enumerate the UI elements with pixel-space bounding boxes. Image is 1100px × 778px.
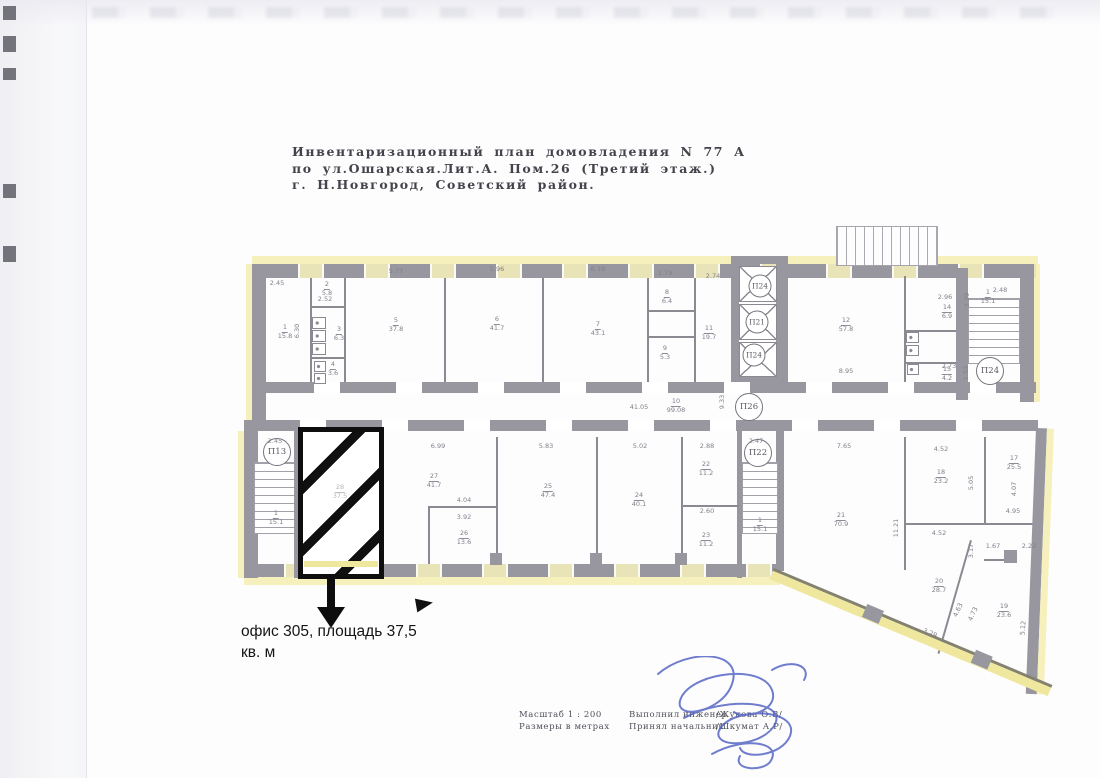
callout-arrow xyxy=(327,578,335,608)
callout-line-1: офис 305, площадь 37,5 xyxy=(241,621,417,642)
dimension-label: 1.67 xyxy=(986,542,1000,550)
dimension-label: 2.47 xyxy=(749,437,763,445)
dimension-label: 2.60 xyxy=(700,507,714,515)
wc-fixture xyxy=(314,373,326,384)
stair-treads xyxy=(254,462,296,534)
office-305-highlighted-room xyxy=(298,427,384,579)
room-label: 2613.6 xyxy=(457,530,471,546)
dimension-label: 5.83 xyxy=(539,442,553,450)
wall-pier xyxy=(490,553,502,565)
wall-pier xyxy=(675,553,687,565)
partition xyxy=(428,506,430,564)
dimension-label: 4.07 xyxy=(1010,482,1018,496)
room-label: 641.7 xyxy=(490,316,504,332)
partition xyxy=(694,278,696,382)
wc-fixture xyxy=(906,332,919,343)
room-label: 146.9 xyxy=(942,304,952,320)
wall-left-upper xyxy=(252,264,266,420)
stair-wall xyxy=(956,268,968,400)
wc-fixture xyxy=(312,330,326,342)
room-label: 2741.7 xyxy=(427,473,441,489)
partition xyxy=(904,276,906,382)
room-label: 115.8 xyxy=(278,324,292,340)
partition xyxy=(681,437,683,565)
wc-fixture xyxy=(314,361,326,372)
room-label: 2028.7 xyxy=(932,578,946,594)
wall-pier xyxy=(1004,550,1017,563)
room-label: 86.4 xyxy=(662,289,672,305)
dimension-label: 2.45 xyxy=(270,279,284,287)
dimension-label: 2.45 xyxy=(268,437,282,445)
partition xyxy=(648,336,694,338)
partition xyxy=(496,437,498,565)
dimension-label: 2.96 xyxy=(938,293,952,301)
dimension-label: 5.02 xyxy=(633,442,647,450)
scanned-plan-page: Инвентаризационный план домовладения N 7… xyxy=(0,0,1100,778)
dimension-label: 4.52 xyxy=(932,529,946,537)
dimension-label: 3.92 xyxy=(457,513,471,521)
highlight-wall xyxy=(304,561,378,567)
partition xyxy=(444,278,446,382)
partition xyxy=(648,310,694,312)
partition xyxy=(428,506,496,508)
elevator-shaft xyxy=(739,342,777,377)
wall-pier xyxy=(590,553,602,565)
partition xyxy=(984,437,986,525)
lift-shaft-wall xyxy=(731,256,739,382)
room-label: 1099.08 xyxy=(667,398,686,414)
stair-wall xyxy=(1020,264,1034,402)
elevator-shaft xyxy=(739,266,777,302)
fire-escape-stair xyxy=(836,226,938,266)
dimension-label: 2.48 xyxy=(993,286,1007,294)
dimension-label: 11.21 xyxy=(892,519,900,538)
dimension-label: 2.88 xyxy=(700,442,714,450)
dimension-label: 4.95 xyxy=(1006,507,1020,515)
partition xyxy=(344,278,346,382)
room-label: 95.3 xyxy=(660,345,670,361)
partition xyxy=(542,278,544,382)
dimension-label: 41.05 xyxy=(630,403,649,411)
pointer-arrow-icon xyxy=(415,596,434,613)
partition xyxy=(937,540,971,654)
stair-circle-label: П26 xyxy=(735,393,763,421)
office-callout: офис 305, площадь 37,5 кв. м xyxy=(241,621,417,663)
scale-label: Масштаб 1 : 200 xyxy=(519,710,602,720)
room-label: 1119.7 xyxy=(702,325,716,341)
dimension-label: 8.95 xyxy=(839,367,853,375)
room-label: 25.8 xyxy=(322,281,332,297)
wall-right-slant xyxy=(1026,428,1054,694)
room-label: 43.6 xyxy=(328,361,338,377)
room-label: 2440.1 xyxy=(632,492,646,508)
partition xyxy=(904,523,1038,525)
room-label: 2547.4 xyxy=(541,483,555,499)
dimension-label: 5.05 xyxy=(967,476,975,490)
signature-scribble xyxy=(592,656,852,774)
room-label: 1823.2 xyxy=(934,469,948,485)
stair-treads xyxy=(742,462,778,534)
room-label: 1725.5 xyxy=(1007,455,1021,471)
wall-top xyxy=(258,264,1036,278)
partition xyxy=(596,437,598,565)
room-label: 1923.6 xyxy=(997,603,1011,619)
callout-line-2: кв. м xyxy=(241,642,417,663)
dimension-label: 4.04 xyxy=(457,496,471,504)
partition xyxy=(681,505,739,507)
room-label: 1257.8 xyxy=(839,317,853,333)
room-label: 2211.2 xyxy=(699,461,713,477)
elevator-shaft xyxy=(739,304,777,340)
dimension-label: 6.30 xyxy=(293,324,301,338)
floor-plan: П13П24П21П24П26П22П24115.825.836.343.653… xyxy=(0,0,1100,778)
dimension-label: 6.99 xyxy=(431,442,445,450)
wall-corridor-north xyxy=(258,382,1036,393)
room-label: 2170.9 xyxy=(834,512,848,528)
wc-fixture xyxy=(907,364,919,375)
dimension-label: 7.65 xyxy=(837,442,851,450)
partition xyxy=(310,357,344,359)
room-label: 743.1 xyxy=(591,321,605,337)
partition xyxy=(310,306,344,308)
room-label: 2311.2 xyxy=(699,532,713,548)
dimension-label: 2.52 xyxy=(318,295,332,303)
wc-fixture xyxy=(312,343,326,355)
dimension-label: 4.73 xyxy=(966,606,979,623)
dimension-label: 5.12 xyxy=(1018,620,1027,635)
wc-fixture xyxy=(906,345,919,356)
partition xyxy=(904,437,906,570)
stair-treads xyxy=(968,298,1020,364)
room-label: 537.8 xyxy=(389,317,403,333)
dimension-label: 9.33 xyxy=(718,395,726,409)
partition xyxy=(647,278,649,382)
wc-fixture xyxy=(312,317,326,329)
lift-shaft-wall xyxy=(776,256,788,382)
room-label: 154.2 xyxy=(942,366,952,382)
dimension-label: 4.52 xyxy=(934,445,948,453)
room-label: 36.3 xyxy=(334,326,344,342)
